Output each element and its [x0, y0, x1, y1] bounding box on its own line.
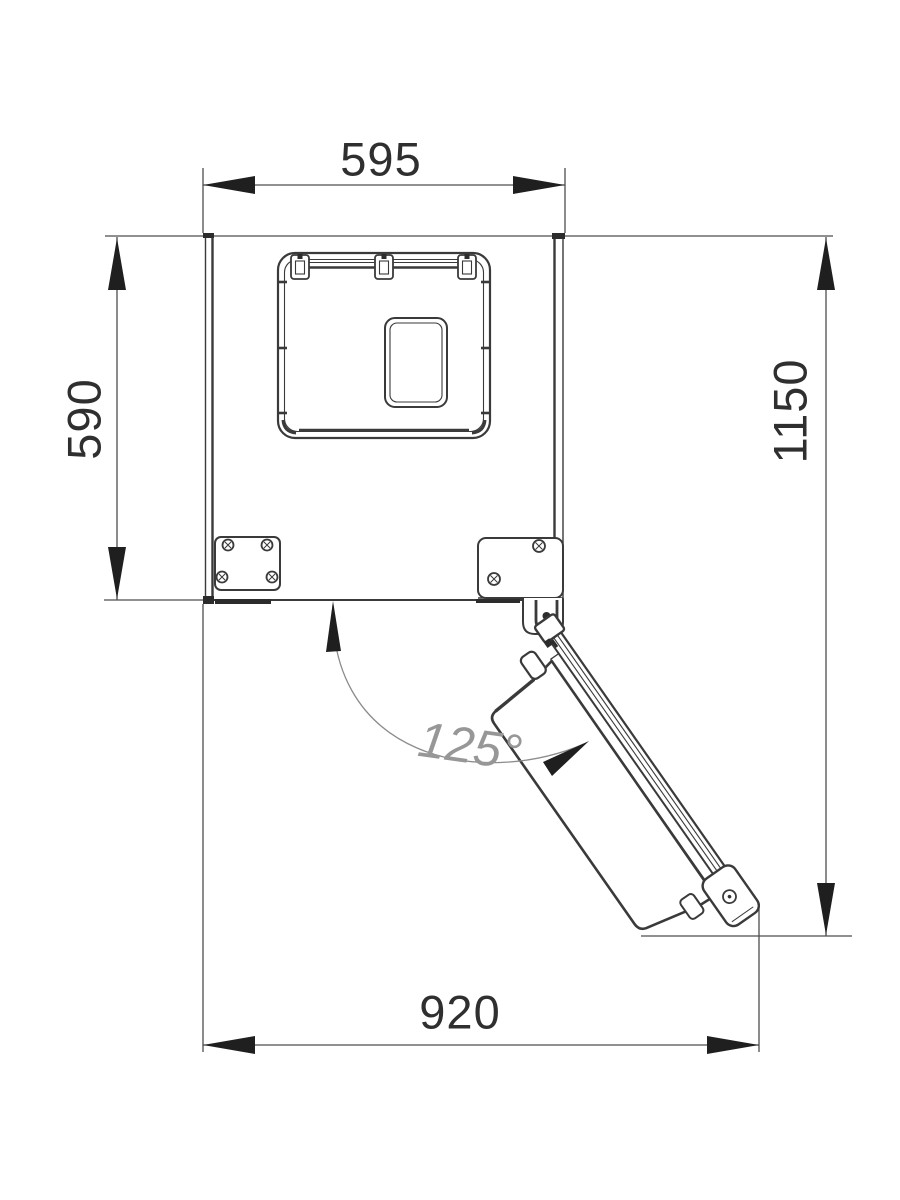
- bottom-bar-left: [215, 599, 271, 604]
- cover-recess-outer: [385, 318, 447, 407]
- bottom-bar-right: [476, 599, 520, 603]
- drawing-canvas: 595 590 1150 920 125°: [0, 0, 900, 1200]
- dimension-label-cabinet-depth: 590: [61, 378, 108, 459]
- arrow-right-bottom: [707, 1036, 759, 1054]
- arrow-left: [203, 176, 255, 194]
- arrow-down-right: [817, 883, 835, 935]
- left-wall-cap: [203, 233, 214, 238]
- arrow-right: [513, 176, 565, 194]
- right-hinge-plate: [478, 538, 563, 598]
- door-angle-label: 125°: [415, 714, 524, 778]
- bottom-foot-left: [203, 596, 214, 604]
- top-cover: [277, 253, 491, 438]
- left-hinge-plate: [215, 537, 280, 590]
- cover-clip-left: [291, 254, 309, 279]
- dimension-label-open-width: 920: [419, 989, 500, 1036]
- cover-clip-center: [375, 254, 393, 279]
- door-mid-connector: [551, 654, 559, 660]
- door-open: [462, 612, 762, 973]
- dimension-label-cabinet-width: 595: [340, 136, 421, 183]
- dimension-label-open-depth: 1150: [767, 358, 814, 463]
- right-wall-cap: [552, 233, 565, 239]
- arrow-up-left: [108, 238, 126, 290]
- arrow-down-left: [108, 547, 126, 599]
- swing-arc-arrow-start: [326, 601, 341, 652]
- cover-clip-right: [458, 254, 476, 279]
- arrow-up-right: [817, 238, 835, 290]
- arrow-left-bottom: [203, 1036, 255, 1054]
